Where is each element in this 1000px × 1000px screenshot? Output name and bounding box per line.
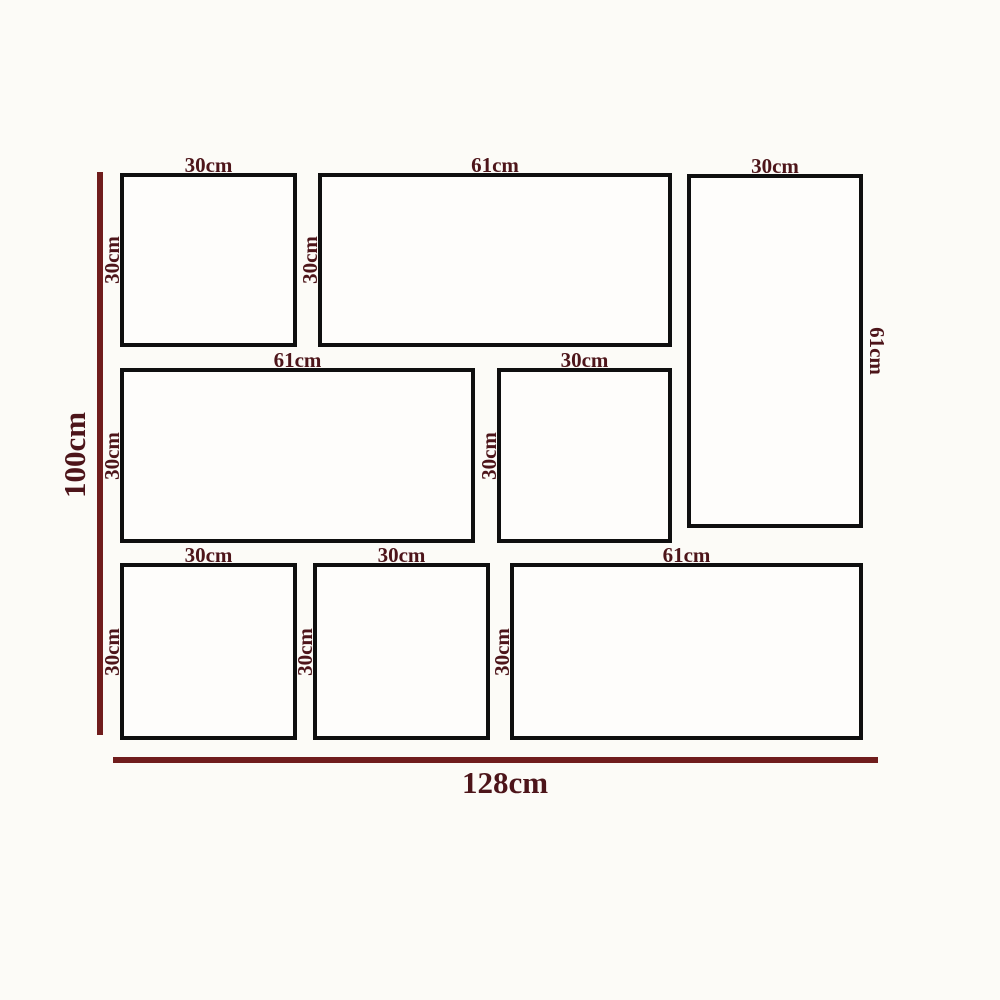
panel-width-label: 61cm (663, 544, 711, 566)
panel-top-left-30x30: 30cm 30cm (120, 173, 297, 347)
panel-middle-right-30x30: 30cm 30cm (497, 368, 672, 543)
panel-layout-diagram: 100cm 128cm 30cm 30cm 61cm 30cm 30cm 61c… (0, 0, 1000, 1000)
panel-height-label: 30cm (491, 628, 513, 676)
panel-height-label: 30cm (101, 236, 123, 284)
panel-bottom-middle-30x30: 30cm 30cm (313, 563, 490, 740)
panel-height-label: 30cm (101, 628, 123, 676)
panel-top-middle-61x30: 61cm 30cm (318, 173, 672, 347)
panel-bottom-right-61x30: 61cm 30cm (510, 563, 863, 740)
total-width-label: 128cm (462, 765, 548, 801)
panel-height-label: 61cm (866, 327, 888, 375)
panel-top-right-30x61: 30cm 61cm (687, 174, 863, 528)
panel-width-label: 61cm (274, 349, 322, 371)
panel-width-label: 30cm (378, 544, 426, 566)
panel-width-label: 61cm (471, 154, 519, 176)
total-width-dimension-line (113, 757, 878, 763)
panel-width-label: 30cm (751, 155, 799, 177)
panel-height-label: 30cm (478, 432, 500, 480)
panel-middle-left-61x30: 61cm 30cm (120, 368, 475, 543)
panel-width-label: 30cm (185, 154, 233, 176)
panel-width-label: 30cm (561, 349, 609, 371)
total-height-label: 100cm (57, 412, 93, 498)
panel-height-label: 30cm (294, 628, 316, 676)
panel-height-label: 30cm (299, 236, 321, 284)
panel-bottom-left-30x30: 30cm 30cm (120, 563, 297, 740)
panel-height-label: 30cm (101, 432, 123, 480)
panel-width-label: 30cm (185, 544, 233, 566)
